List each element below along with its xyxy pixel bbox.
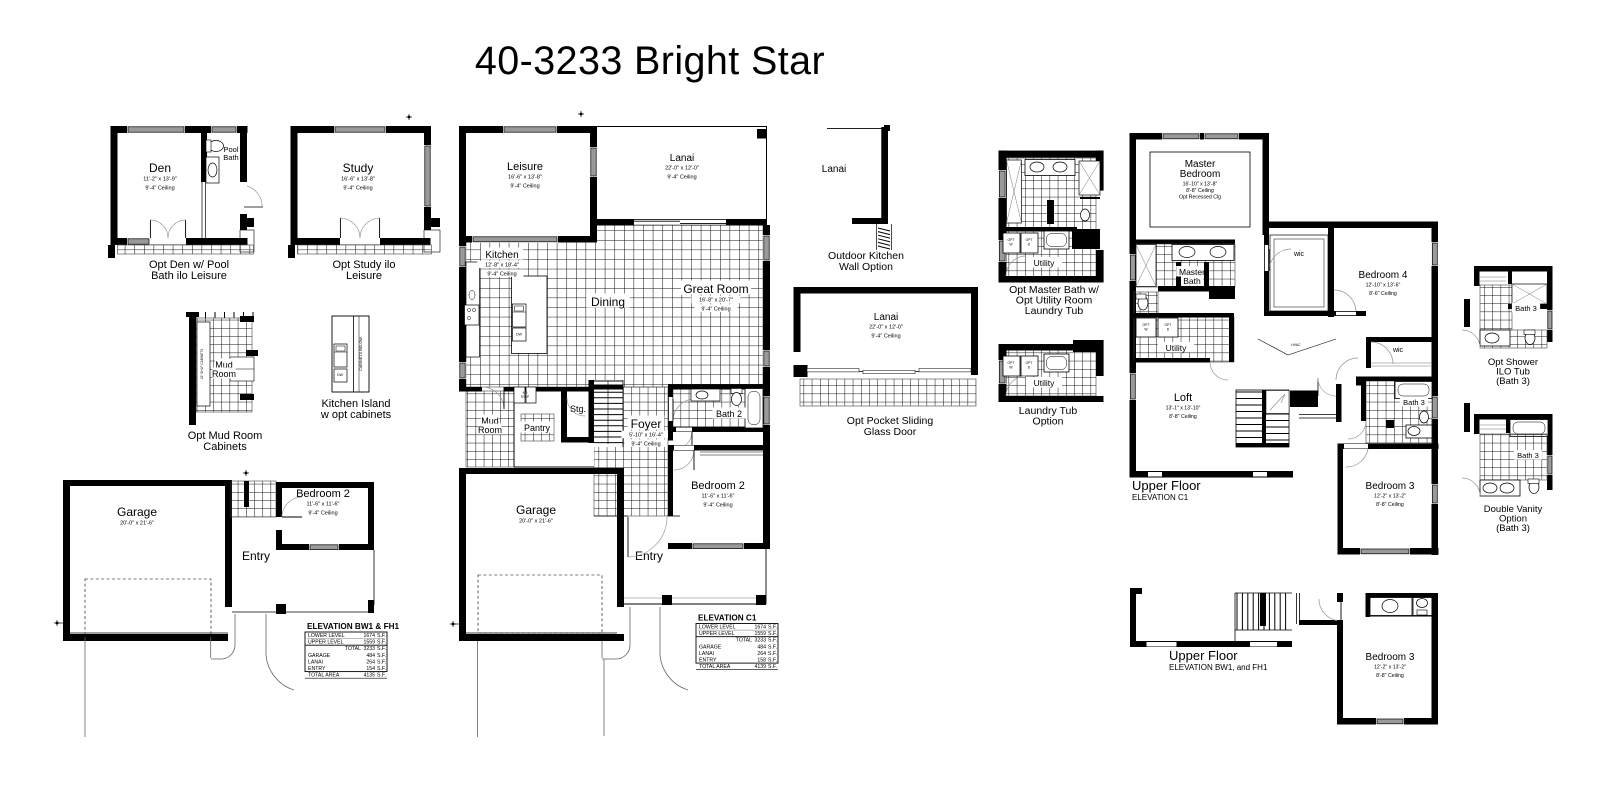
svg-text:S.F.: S.F. (768, 631, 777, 637)
svg-text:Bath: Bath (223, 153, 238, 162)
svg-text:Bedroom 2: Bedroom 2 (296, 488, 350, 500)
svg-text:S.F.: S.F. (377, 673, 386, 679)
svg-text:w opt cabinets: w opt cabinets (320, 409, 392, 421)
svg-text:8'-8" Ceiling: 8'-8" Ceiling (1376, 502, 1404, 508)
svg-text:Utility: Utility (1034, 378, 1056, 388)
svg-text:Bath ilo Leisure: Bath ilo Leisure (151, 270, 227, 282)
svg-text:Glass Door: Glass Door (864, 426, 917, 438)
svg-text:OPT: OPT (1143, 323, 1150, 327)
svg-text:LOWER LEVEL: LOWER LEVEL (308, 633, 345, 639)
svg-text:Utility: Utility (1166, 343, 1188, 353)
svg-text:Utility: Utility (1034, 258, 1056, 268)
svg-text:Pantry: Pantry (524, 423, 551, 433)
svg-text:3233: 3233 (754, 638, 766, 644)
svg-text:4139: 4139 (754, 664, 766, 670)
svg-text:Lanai: Lanai (670, 153, 694, 164)
svg-text:1674: 1674 (363, 633, 375, 639)
svg-text:Den: Den (149, 161, 171, 175)
svg-text:1674: 1674 (754, 625, 766, 631)
svg-text:UPPER LEVEL: UPPER LEVEL (699, 631, 735, 637)
svg-text:(Bath 3): (Bath 3) (1496, 523, 1530, 534)
svg-text:13'-1" x 13'-10": 13'-1" x 13'-10" (1166, 405, 1201, 411)
svg-text:158: 158 (757, 658, 766, 664)
svg-text:9'-4" Ceiling: 9'-4" Ceiling (871, 333, 900, 339)
svg-text:16'-6" x 13'-8": 16'-6" x 13'-8" (508, 175, 542, 181)
svg-text:Bath 3: Bath 3 (1517, 451, 1539, 460)
svg-text:12'-8" x 18'-4": 12'-8" x 18'-4" (485, 263, 519, 269)
svg-text:wic: wic (1293, 251, 1305, 258)
svg-text:Garage: Garage (117, 505, 157, 519)
svg-text:Study: Study (343, 161, 374, 175)
svg-text:Upper Floor: Upper Floor (1169, 648, 1238, 663)
svg-text:12'-2" x 13'-2": 12'-2" x 13'-2" (1374, 664, 1406, 670)
svg-text:Room: Room (478, 425, 502, 435)
svg-text:Option: Option (1033, 416, 1064, 428)
svg-text:GARAGE: GARAGE (308, 653, 331, 659)
svg-text:264: 264 (366, 659, 375, 665)
svg-text:ELEVATION C1: ELEVATION C1 (1132, 493, 1189, 502)
svg-text:LOWER LEVEL: LOWER LEVEL (699, 625, 736, 631)
svg-text:484: 484 (366, 653, 375, 659)
svg-text:ELEVATION BW1, and FH1: ELEVATION BW1, and FH1 (1169, 663, 1268, 672)
svg-text:Bath 2: Bath 2 (716, 409, 742, 419)
svg-text:20'-0" x 21'-6": 20'-0" x 21'-6" (120, 521, 154, 527)
svg-text:OPT: OPT (1026, 361, 1033, 365)
svg-text:S.F.: S.F. (768, 638, 777, 644)
svg-text:S.F.: S.F. (768, 664, 777, 670)
svg-text:20'-0" x 21'-6": 20'-0" x 21'-6" (519, 519, 553, 525)
svg-text:4135: 4135 (363, 673, 375, 679)
svg-text:OPT: OPT (1008, 238, 1015, 242)
svg-text:(Bath 3): (Bath 3) (1496, 376, 1530, 387)
svg-text:12'-2" x 13'-2": 12'-2" x 13'-2" (1374, 493, 1406, 499)
svg-text:Garage: Garage (516, 503, 556, 517)
svg-text:22'-0" x 12'-0": 22'-0" x 12'-0" (869, 325, 903, 331)
svg-text:9'-4" Ceiling: 9'-4" Ceiling (308, 510, 337, 516)
svg-text:ELEVATION C1: ELEVATION C1 (698, 614, 757, 623)
svg-text:16'-6" x 13'-8": 16'-6" x 13'-8" (341, 177, 375, 183)
svg-text:12'-10" x 13'-6": 12'-10" x 13'-6" (1366, 282, 1401, 288)
svg-text:22'-0" x 12'-0": 22'-0" x 12'-0" (665, 166, 699, 172)
svg-text:9'-4" Ceiling: 9'-4" Ceiling (701, 306, 730, 312)
svg-text:S.F.: S.F. (768, 644, 777, 650)
svg-text:S.F.: S.F. (768, 658, 777, 664)
svg-text:8'-8" Ceiling: 8'-8" Ceiling (1169, 414, 1197, 420)
svg-text:TOTAL: TOTAL (736, 638, 752, 644)
svg-text:TOTAL AREA: TOTAL AREA (699, 664, 731, 670)
svg-text:5'-10" x 16'-4": 5'-10" x 16'-4" (629, 433, 663, 439)
svg-text:9'-4" Ceiling: 9'-4" Ceiling (631, 441, 660, 447)
svg-text:Great Room: Great Room (683, 282, 748, 296)
svg-text:LANAI: LANAI (699, 651, 714, 657)
svg-text:Bedroom 3: Bedroom 3 (1366, 481, 1415, 492)
svg-text:ENTRY: ENTRY (308, 666, 326, 672)
svg-text:STEP: STEP (521, 395, 529, 399)
svg-text:16'-8" x 20'-7": 16'-8" x 20'-7" (699, 298, 733, 304)
svg-text:UPPER LEVEL: UPPER LEVEL (308, 640, 344, 646)
svg-text:9'-4" Ceiling: 9'-4" Ceiling (145, 185, 174, 191)
svg-text:Room: Room (212, 369, 236, 379)
svg-text:GARAGE: GARAGE (699, 644, 722, 650)
svg-text:Bath 3: Bath 3 (1403, 398, 1425, 407)
svg-text:Foyer: Foyer (631, 417, 662, 431)
svg-text:9'-4" Ceiling: 9'-4" Ceiling (487, 271, 516, 277)
svg-text:DW: DW (516, 333, 523, 337)
svg-text:11'-6" x 11'-6": 11'-6" x 11'-6" (701, 494, 734, 500)
svg-text:8'-6" Ceiling: 8'-6" Ceiling (1369, 291, 1397, 297)
svg-text:Laundry Tub: Laundry Tub (1025, 305, 1084, 317)
svg-text:S.F.: S.F. (768, 625, 777, 631)
svg-text:9'-4" Ceiling: 9'-4" Ceiling (510, 183, 539, 189)
svg-text:Stg.: Stg. (570, 404, 586, 414)
svg-text:40-3233 Bright Star: 40-3233 Bright Star (475, 39, 825, 83)
svg-text:Upper Floor: Upper Floor (1132, 478, 1201, 493)
svg-text:DW: DW (337, 373, 344, 377)
svg-text:Loft: Loft (1174, 392, 1192, 404)
svg-text:Cabinets: Cabinets (203, 441, 247, 453)
svg-text:Bath 3: Bath 3 (1515, 304, 1537, 313)
svg-text:wic: wic (1392, 347, 1404, 354)
svg-text:ELEVATION BW1 & FH1: ELEVATION BW1 & FH1 (307, 622, 399, 631)
svg-text:OPT: OPT (1165, 323, 1172, 327)
svg-text:OPT: OPT (1008, 361, 1015, 365)
svg-text:1559: 1559 (363, 640, 375, 646)
svg-text:Entry: Entry (635, 549, 663, 563)
svg-text:Opt Recessed Clg: Opt Recessed Clg (1179, 195, 1221, 201)
svg-text:8'-8" Ceiling: 8'-8" Ceiling (1186, 188, 1214, 194)
svg-text:16'-10" x 13'-8": 16'-10" x 13'-8" (1183, 182, 1218, 188)
svg-text:OPT: OPT (1026, 238, 1033, 242)
svg-text:Kitchen: Kitchen (485, 250, 518, 261)
svg-text:S.F.: S.F. (377, 633, 386, 639)
svg-text:9'-4" Ceiling: 9'-4" Ceiling (343, 185, 372, 191)
svg-text:S.F.: S.F. (377, 666, 386, 672)
svg-text:Bedroom 4: Bedroom 4 (1359, 270, 1408, 281)
svg-text:Wall Option: Wall Option (839, 261, 893, 273)
svg-text:Bedroom: Bedroom (1180, 169, 1221, 180)
svg-text:ENTRY: ENTRY (699, 658, 717, 664)
svg-text:HVAC: HVAC (1291, 343, 1301, 347)
svg-text:154: 154 (366, 666, 375, 672)
svg-text:11'-6" x 11'-6": 11'-6" x 11'-6" (306, 502, 339, 508)
svg-text:9'-4" Ceiling: 9'-4" Ceiling (667, 174, 696, 180)
svg-text:484: 484 (757, 644, 766, 650)
svg-text:Lanai: Lanai (874, 312, 898, 323)
svg-text:Bedroom 2: Bedroom 2 (691, 480, 745, 492)
svg-text:Bath: Bath (1183, 276, 1201, 286)
svg-text:TOTAL AREA: TOTAL AREA (308, 673, 340, 679)
svg-text:S.F.: S.F. (377, 640, 386, 646)
svg-text:3233: 3233 (363, 646, 375, 652)
svg-text:TOTAL: TOTAL (345, 646, 361, 652)
svg-text:9'-4" Ceiling: 9'-4" Ceiling (703, 502, 732, 508)
svg-text:264: 264 (757, 651, 766, 657)
svg-text:1559: 1559 (754, 631, 766, 637)
svg-text:Leisure: Leisure (507, 161, 543, 173)
svg-text:LANAI: LANAI (308, 659, 323, 665)
svg-text:Bedroom 3: Bedroom 3 (1366, 652, 1415, 663)
svg-text:S.F.: S.F. (377, 653, 386, 659)
svg-text:Entry: Entry (242, 549, 270, 563)
svg-text:S.F.: S.F. (768, 651, 777, 657)
svg-text:8'-8" Ceiling: 8'-8" Ceiling (1376, 673, 1404, 679)
svg-text:CABINETS BELOW: CABINETS BELOW (359, 337, 363, 371)
svg-text:42" SHLF CABINETS: 42" SHLF CABINETS (200, 349, 204, 380)
svg-text:11'-2" x 13'-9": 11'-2" x 13'-9" (143, 177, 176, 183)
svg-text:Leisure: Leisure (346, 270, 382, 282)
svg-text:Lanai: Lanai (822, 164, 846, 175)
svg-text:S.F.: S.F. (377, 659, 386, 665)
svg-text:S.F.: S.F. (377, 646, 386, 652)
svg-text:Dining: Dining (591, 295, 625, 309)
